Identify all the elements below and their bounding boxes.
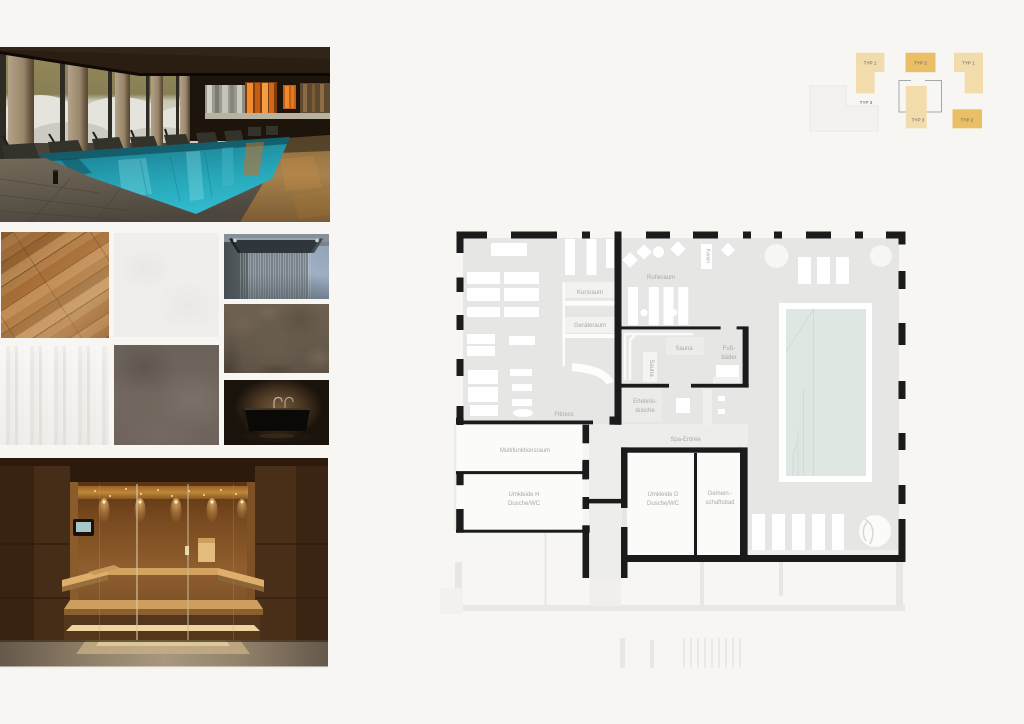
svg-text:TYP 1: TYP 1: [864, 61, 877, 66]
svg-text:Umkleide H: Umkleide H: [508, 492, 539, 498]
svg-text:TYP 3: TYP 3: [860, 100, 873, 105]
svg-text:Spa-Entrée: Spa-Entrée: [670, 437, 701, 443]
svg-text:Gemein.-: Gemein.-: [708, 491, 733, 497]
svg-text:TYP 1: TYP 1: [962, 61, 975, 66]
svg-text:Sauna: Sauna: [675, 346, 693, 352]
svg-text:Dusche/WC: Dusche/WC: [647, 501, 680, 507]
svg-text:Erlebnis-: Erlebnis-: [633, 399, 657, 405]
svg-text:Fitness: Fitness: [554, 412, 573, 418]
svg-text:Ruheraum: Ruheraum: [647, 275, 675, 281]
svg-text:Kursraum: Kursraum: [577, 290, 603, 296]
svg-text:Sauna: Sauna: [648, 359, 654, 377]
svg-text:Fuß-: Fuß-: [723, 346, 736, 352]
svg-text:Multifunktionsraum: Multifunktionsraum: [500, 448, 550, 454]
svg-text:Kamin: Kamin: [705, 249, 711, 263]
svg-text:bäder: bäder: [721, 355, 736, 361]
svg-text:schaftsbad: schaftsbad: [705, 500, 734, 506]
svg-text:Dusche/WC: Dusche/WC: [508, 501, 541, 507]
svg-text:TYP 3: TYP 3: [912, 118, 925, 123]
svg-text:TYP 2: TYP 2: [961, 118, 974, 123]
svg-text:Umkleide D: Umkleide D: [647, 492, 679, 498]
svg-text:TYP 2: TYP 2: [914, 61, 927, 66]
svg-text:Geräteraum: Geräteraum: [574, 323, 606, 329]
svg-text:dusche: dusche: [635, 408, 655, 414]
